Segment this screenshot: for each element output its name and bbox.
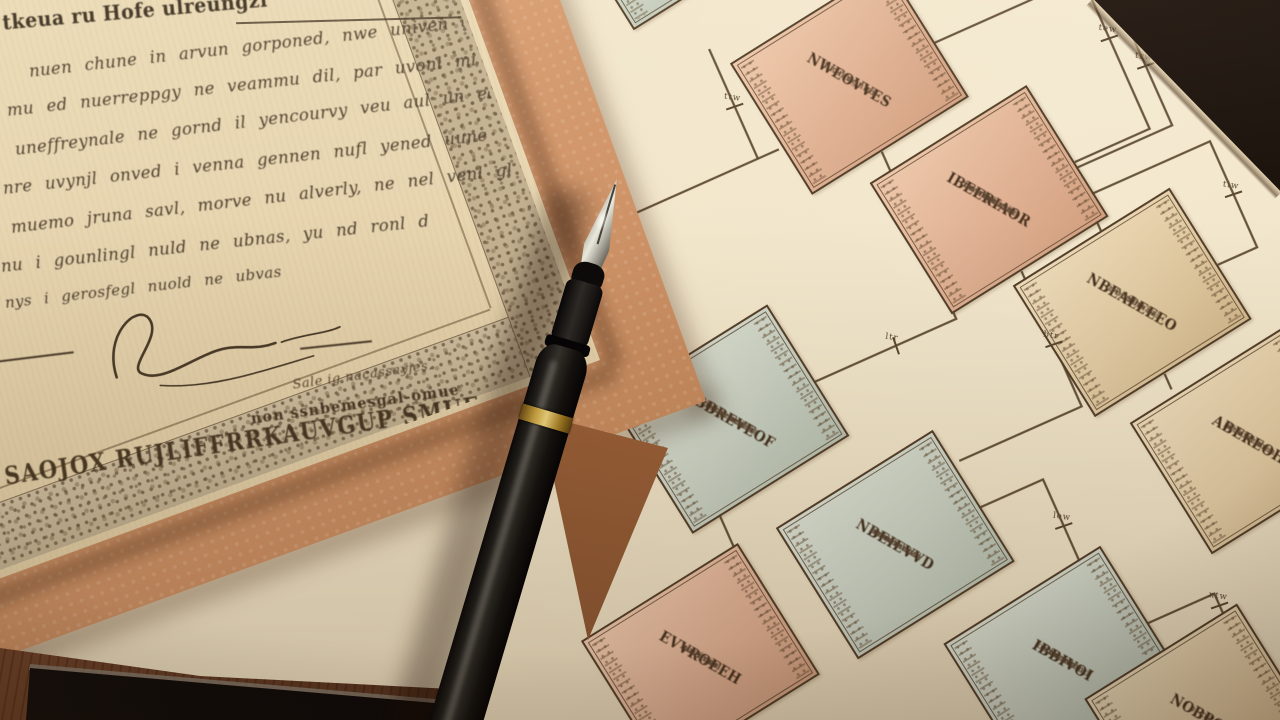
certificate-heading: tkeua ru Hofe ulreungzi — [1, 0, 237, 35]
margin-mark — [0, 351, 74, 362]
desk-scene: IBBOilb ev NWEOVVES e o kula gnuel brsnr… — [0, 0, 1280, 720]
